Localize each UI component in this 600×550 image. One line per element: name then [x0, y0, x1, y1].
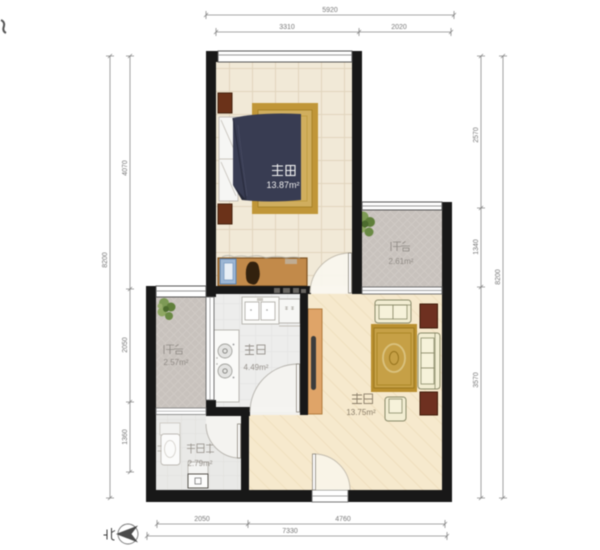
svg-text:13.75m²: 13.75m²	[346, 408, 376, 417]
svg-text:8200: 8200	[495, 269, 502, 285]
svg-text:1360: 1360	[122, 429, 129, 445]
svg-text:2050: 2050	[194, 516, 210, 523]
svg-text:2.57m²: 2.57m²	[164, 358, 189, 367]
svg-text:4760: 4760	[335, 516, 351, 523]
svg-text:2050: 2050	[122, 337, 129, 353]
svg-text:4070: 4070	[122, 160, 129, 176]
svg-text:2.79m²: 2.79m²	[188, 459, 213, 468]
svg-text:2020: 2020	[391, 24, 407, 31]
svg-text:8200: 8200	[102, 252, 109, 268]
svg-text:2.61m²: 2.61m²	[389, 257, 414, 266]
svg-text:13.87m²: 13.87m²	[266, 180, 299, 190]
svg-text:1340: 1340	[473, 239, 480, 255]
svg-text:4.49m²: 4.49m²	[244, 363, 269, 372]
svg-text:7330: 7330	[282, 528, 298, 535]
svg-text:2570: 2570	[473, 127, 480, 143]
svg-text:3310: 3310	[279, 24, 295, 31]
svg-text:3570: 3570	[473, 372, 480, 388]
svg-text:5920: 5920	[322, 7, 338, 14]
